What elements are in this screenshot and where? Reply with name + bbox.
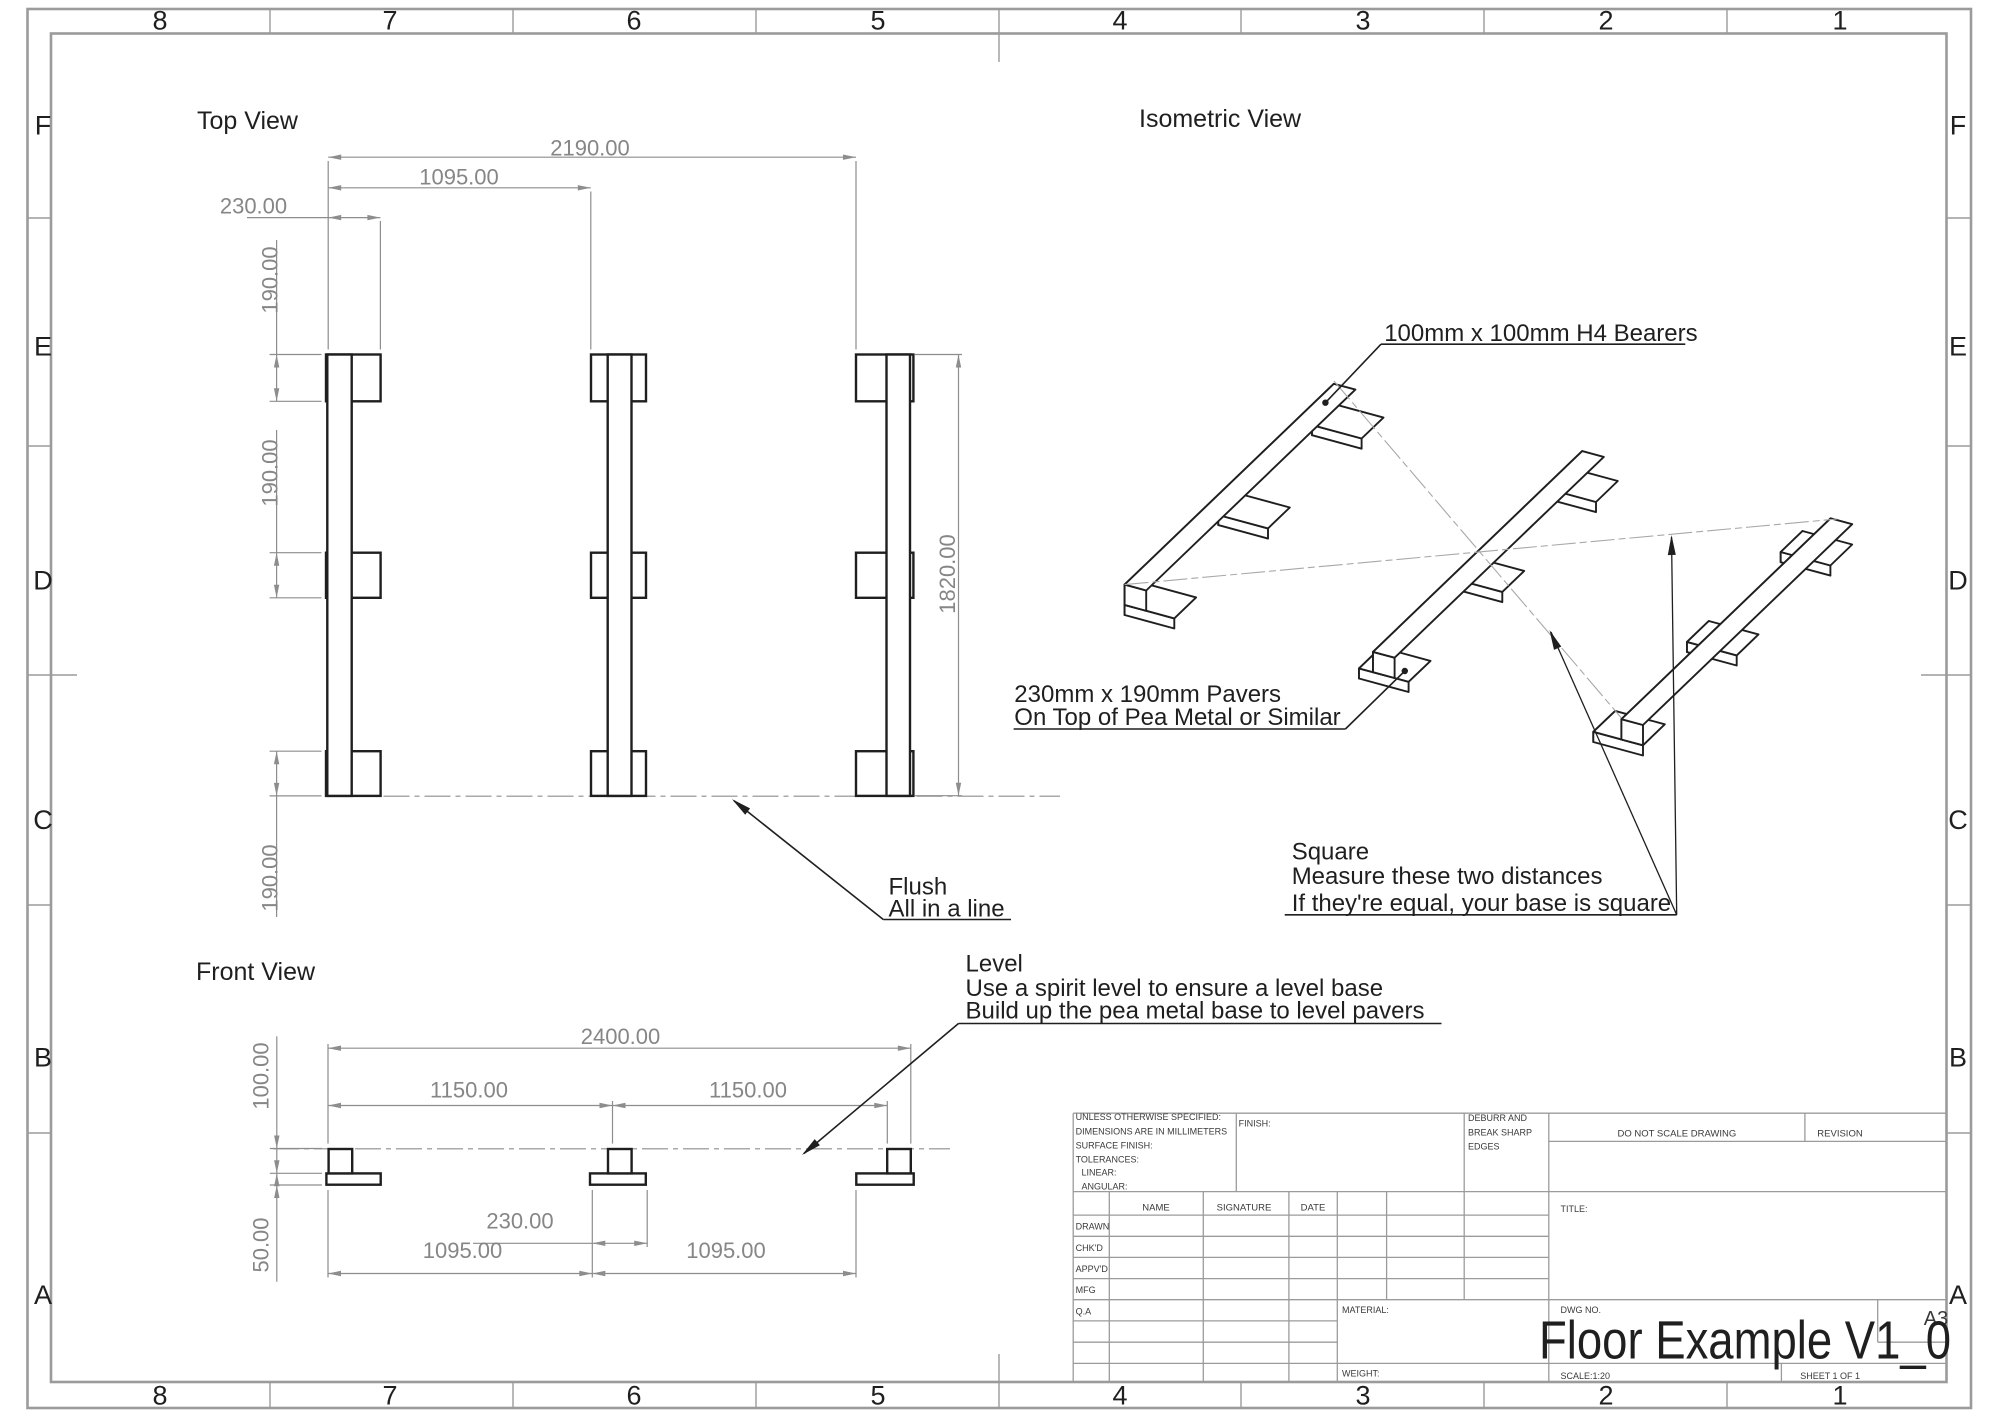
svg-text:190.00: 190.00 xyxy=(258,844,283,911)
svg-text:1150.00: 1150.00 xyxy=(430,1078,508,1103)
svg-text:CHK'D: CHK'D xyxy=(1076,1243,1104,1253)
svg-text:Top View: Top View xyxy=(197,107,299,135)
svg-text:4: 4 xyxy=(1112,1381,1127,1411)
svg-text:8: 8 xyxy=(152,1381,167,1411)
svg-text:1095.00: 1095.00 xyxy=(686,1238,766,1263)
svg-text:B: B xyxy=(34,1043,52,1073)
svg-text:SURFACE FINISH:: SURFACE FINISH: xyxy=(1076,1140,1153,1150)
svg-text:Isometric View: Isometric View xyxy=(1139,105,1302,133)
svg-text:50.00: 50.00 xyxy=(249,1217,274,1272)
svg-text:1095.00: 1095.00 xyxy=(419,165,499,190)
svg-text:230.00: 230.00 xyxy=(486,1208,553,1233)
svg-text:A: A xyxy=(34,1280,52,1310)
svg-text:TOLERANCES:: TOLERANCES: xyxy=(1076,1155,1139,1165)
svg-text:B: B xyxy=(1949,1043,1967,1073)
svg-text:DEBURR AND: DEBURR AND xyxy=(1468,1113,1528,1123)
svg-text:SIGNATURE: SIGNATURE xyxy=(1217,1202,1272,1213)
svg-text:BREAK SHARP: BREAK SHARP xyxy=(1468,1127,1532,1137)
svg-text:7: 7 xyxy=(382,6,397,36)
svg-text:UNLESS OTHERWISE SPECIFIED:: UNLESS OTHERWISE SPECIFIED: xyxy=(1076,1112,1221,1122)
svg-text:4: 4 xyxy=(1112,6,1127,36)
svg-text:DO NOT SCALE DRAWING: DO NOT SCALE DRAWING xyxy=(1618,1129,1737,1140)
svg-text:A: A xyxy=(1949,1280,1967,1310)
svg-text:6: 6 xyxy=(626,1381,641,1411)
svg-text:MFG: MFG xyxy=(1076,1285,1096,1295)
svg-text:5: 5 xyxy=(870,1381,885,1411)
svg-text:F: F xyxy=(35,111,52,141)
svg-text:SCALE:1:20: SCALE:1:20 xyxy=(1561,1371,1611,1381)
svg-text:MATERIAL:: MATERIAL: xyxy=(1342,1305,1389,1315)
svg-text:6: 6 xyxy=(626,6,641,36)
svg-text:All in a line: All in a line xyxy=(889,895,1005,922)
svg-text:LINEAR:: LINEAR: xyxy=(1082,1167,1117,1177)
svg-text:3: 3 xyxy=(1355,6,1370,36)
svg-text:D: D xyxy=(1948,566,1968,596)
svg-text:FINISH:: FINISH: xyxy=(1239,1118,1271,1128)
svg-text:TITLE:: TITLE: xyxy=(1561,1204,1588,1214)
svg-text:7: 7 xyxy=(382,1381,397,1411)
svg-text:F: F xyxy=(1950,111,1967,141)
svg-text:E: E xyxy=(34,332,52,362)
svg-text:1: 1 xyxy=(1832,1381,1847,1411)
svg-text:ANGULAR:: ANGULAR: xyxy=(1082,1181,1128,1191)
svg-text:D: D xyxy=(33,566,53,596)
svg-text:100mm x 100mm H4 Bearers: 100mm x 100mm H4 Bearers xyxy=(1384,320,1697,347)
svg-text:2: 2 xyxy=(1598,6,1613,36)
svg-text:2: 2 xyxy=(1598,1381,1613,1411)
svg-text:NAME: NAME xyxy=(1142,1202,1169,1213)
svg-text:5: 5 xyxy=(870,6,885,36)
svg-text:E: E xyxy=(1949,332,1967,362)
svg-text:Q.A: Q.A xyxy=(1076,1306,1092,1316)
svg-text:3: 3 xyxy=(1355,1381,1370,1411)
svg-text:DATE: DATE xyxy=(1301,1202,1326,1213)
svg-text:1150.00: 1150.00 xyxy=(709,1078,787,1103)
svg-text:2400.00: 2400.00 xyxy=(581,1024,661,1049)
svg-text:Front View: Front View xyxy=(196,958,316,986)
svg-text:8: 8 xyxy=(152,6,167,36)
svg-text:190.00: 190.00 xyxy=(258,439,283,506)
svg-text:APPV'D: APPV'D xyxy=(1076,1264,1109,1274)
svg-text:1095.00: 1095.00 xyxy=(423,1238,503,1263)
svg-text:C: C xyxy=(1948,805,1968,835)
svg-text:On Top of Pea Metal or Similar: On Top of Pea Metal or Similar xyxy=(1014,704,1340,731)
svg-text:190.00: 190.00 xyxy=(258,246,283,313)
svg-text:Square: Square xyxy=(1292,838,1369,865)
svg-text:100.00: 100.00 xyxy=(249,1042,274,1109)
svg-text:SHEET 1 OF 1: SHEET 1 OF 1 xyxy=(1800,1371,1860,1381)
svg-text:1: 1 xyxy=(1832,6,1847,36)
svg-text:DRAWN: DRAWN xyxy=(1076,1222,1110,1232)
svg-text:Measure these two distances: Measure these two distances xyxy=(1292,863,1603,890)
svg-text:EDGES: EDGES xyxy=(1468,1141,1500,1151)
svg-text:WEIGHT:: WEIGHT: xyxy=(1342,1369,1380,1379)
svg-text:2190.00: 2190.00 xyxy=(550,135,630,160)
svg-text:Level: Level xyxy=(966,951,1023,978)
svg-text:1820.00: 1820.00 xyxy=(935,534,960,614)
svg-text:C: C xyxy=(33,805,53,835)
svg-text:Build up the pea metal base to: Build up the pea metal base to level pav… xyxy=(966,998,1425,1025)
svg-text:230.00: 230.00 xyxy=(220,194,287,219)
svg-text:Floor Example V1_0: Floor Example V1_0 xyxy=(1539,1311,1951,1371)
svg-text:If they're equal, your base is: If they're equal, your base is square xyxy=(1292,890,1671,917)
svg-text:REVISION: REVISION xyxy=(1817,1129,1863,1140)
svg-text:DIMENSIONS ARE IN MILLIMETERS: DIMENSIONS ARE IN MILLIMETERS xyxy=(1076,1126,1228,1136)
